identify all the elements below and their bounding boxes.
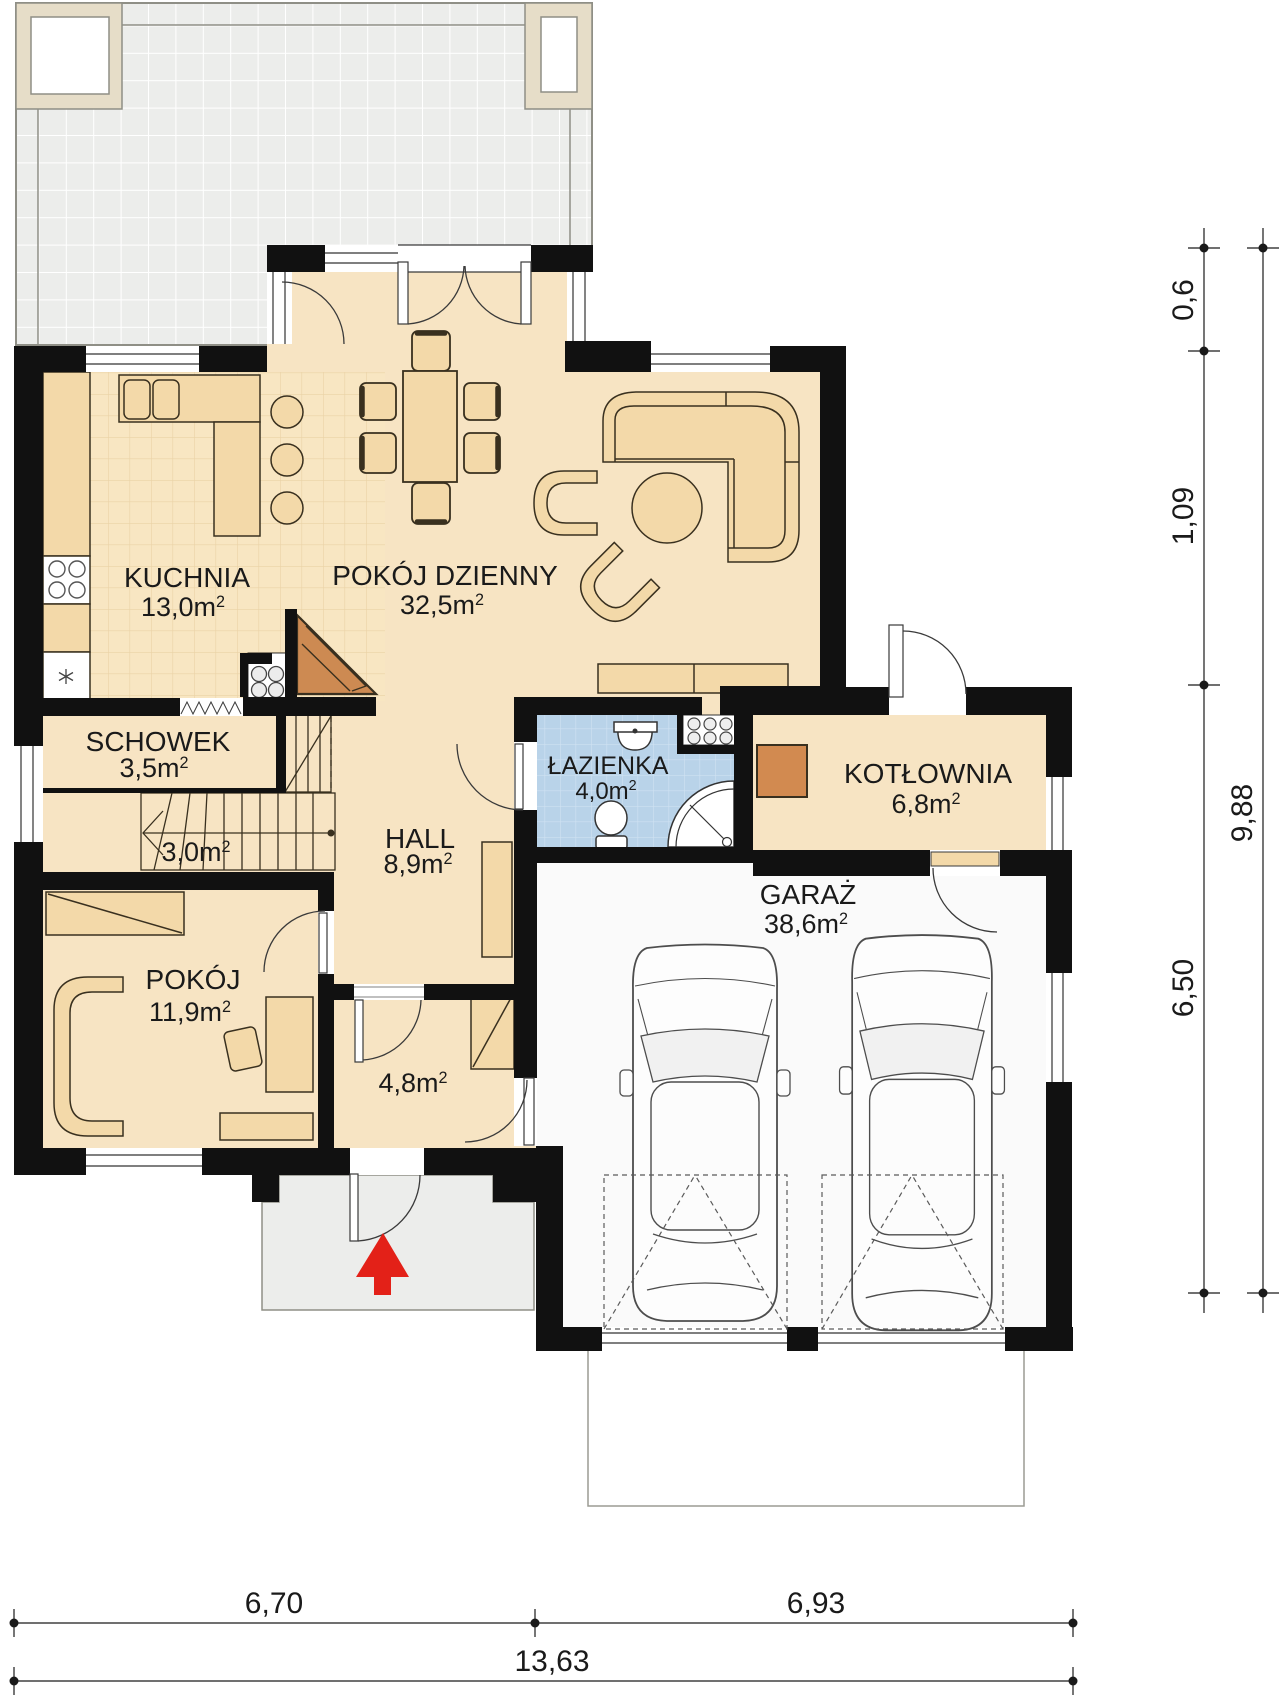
svg-text:1,09: 1,09: [1167, 487, 1200, 545]
svg-text:11,9m2: 11,9m2: [149, 997, 231, 1027]
svg-text:KOTŁOWNIA: KOTŁOWNIA: [844, 758, 1012, 789]
svg-text:4,0m2: 4,0m2: [575, 778, 636, 805]
svg-text:32,5m2: 32,5m2: [400, 590, 484, 620]
svg-text:POKÓJ DZIENNY: POKÓJ DZIENNY: [332, 560, 558, 591]
svg-text:13,63: 13,63: [514, 1645, 589, 1678]
svg-text:ŁAZIENKA: ŁAZIENKA: [548, 752, 669, 780]
svg-text:6,50: 6,50: [1167, 959, 1200, 1017]
svg-text:0,6: 0,6: [1167, 279, 1200, 321]
svg-text:38,6m2: 38,6m2: [764, 909, 848, 939]
svg-text:GARAŻ: GARAŻ: [760, 879, 856, 910]
svg-text:8,9m2: 8,9m2: [383, 849, 452, 879]
svg-text:13,0m2: 13,0m2: [141, 592, 225, 622]
svg-text:6,70: 6,70: [245, 1587, 303, 1620]
svg-text:6,8m2: 6,8m2: [891, 789, 960, 819]
svg-text:4,8m2: 4,8m2: [378, 1068, 447, 1098]
svg-text:6,93: 6,93: [787, 1587, 845, 1620]
svg-text:3,5m2: 3,5m2: [119, 753, 188, 783]
svg-text:3,0m2: 3,0m2: [161, 837, 230, 867]
svg-text:9,88: 9,88: [1226, 784, 1259, 842]
svg-text:KUCHNIA: KUCHNIA: [124, 562, 250, 593]
svg-text:POKÓJ: POKÓJ: [146, 964, 241, 995]
